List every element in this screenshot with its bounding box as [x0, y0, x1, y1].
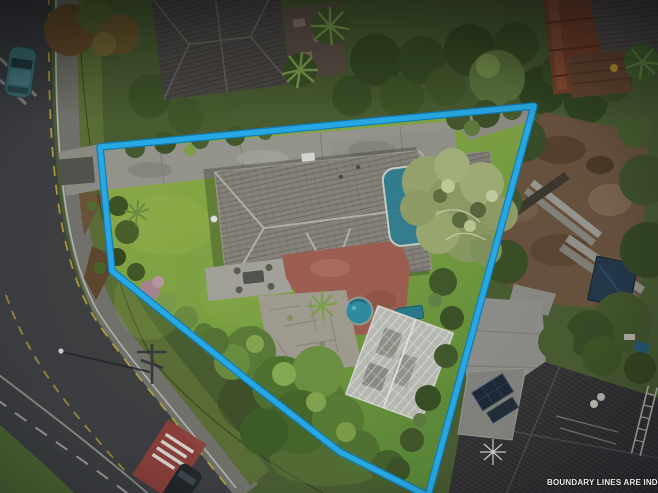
disclaimer-text: BOUNDARY LINES ARE INDICATIVE — [547, 478, 658, 487]
vignette — [0, 0, 658, 493]
aerial-photo-container: BOUNDARY LINES ARE INDICATIVE — [0, 0, 658, 493]
aerial-photo — [0, 0, 658, 493]
